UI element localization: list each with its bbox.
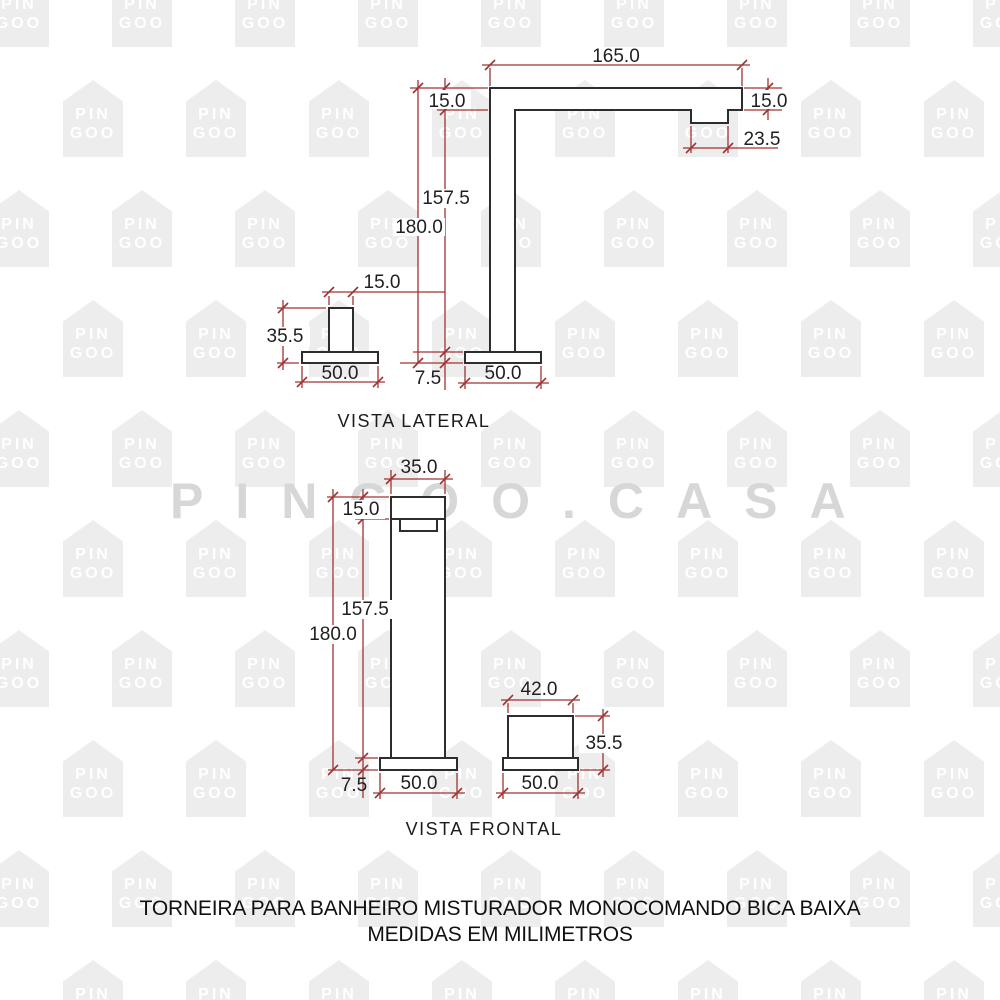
dim-lateral-under-spout-height: 157.5 [422, 188, 470, 209]
footer-title: TORNEIRA PARA BANHEIRO MISTURADOR MONOCO… [0, 896, 1000, 922]
lateral-faucet-base [465, 352, 541, 363]
dim-lateral-base-thickness: 7.5 [415, 368, 441, 389]
dim-lateral-total-height: 180.0 [395, 217, 443, 238]
faucet-technical-drawing: 165.0 15.0 15.0 23.5 157.5 180.0 15.0 35… [0, 0, 1000, 1000]
technical-drawing-canvas: PINGOOPINGOOPINGOOPINGOOPINGOOPINGOOPING… [0, 0, 1000, 1000]
dim-frontal-knob-height: 35.5 [586, 733, 623, 754]
dim-frontal-cap-height: 15.0 [343, 499, 380, 520]
frontal-view-caption: VISTA FRONTAL [406, 819, 563, 839]
dim-frontal-base-thickness: 7.5 [341, 775, 367, 796]
dim-frontal-under-spout-height: 157.5 [341, 599, 389, 620]
dim-lateral-spout-length: 165.0 [592, 46, 640, 67]
dim-lateral-arm-thickness: 15.0 [429, 91, 466, 112]
lateral-faucet-outline [490, 88, 742, 352]
footer-subtitle: MEDIDAS EM MILIMETROS [0, 922, 1000, 948]
dim-lateral-spout-end: 15.0 [751, 91, 788, 112]
frontal-spout-mouth [400, 519, 437, 531]
dim-frontal-total-height: 180.0 [309, 624, 357, 645]
footer-captions: TORNEIRA PARA BANHEIRO MISTURADOR MONOCO… [0, 896, 1000, 948]
dim-frontal-knob-base-width: 50.0 [522, 773, 559, 794]
dim-lateral-handle-base-width: 50.0 [322, 363, 359, 384]
lateral-handle-base [302, 352, 378, 363]
dim-lateral-spout-tip: 23.5 [744, 129, 781, 150]
frontal-faucet-body [391, 497, 445, 758]
lateral-view: 165.0 15.0 15.0 23.5 157.5 180.0 15.0 35… [260, 46, 793, 431]
frontal-view: 35.0 15.0 157.5 180.0 42.0 35.5 7.5 50.0… [307, 457, 629, 839]
frontal-faucet-base [380, 758, 457, 770]
dim-lateral-handle-height: 35.5 [267, 326, 304, 347]
lateral-handle-stem [329, 308, 353, 352]
frontal-knob [508, 716, 573, 758]
dim-frontal-body-width: 35.0 [401, 457, 438, 478]
lateral-view-caption: VISTA LATERAL [338, 411, 491, 431]
dim-lateral-base-width: 50.0 [485, 363, 522, 384]
dim-frontal-knob-width: 42.0 [521, 679, 558, 700]
dim-lateral-handle-width: 15.0 [364, 272, 401, 293]
dim-frontal-base-width: 50.0 [401, 773, 438, 794]
frontal-knob-base [503, 758, 578, 770]
